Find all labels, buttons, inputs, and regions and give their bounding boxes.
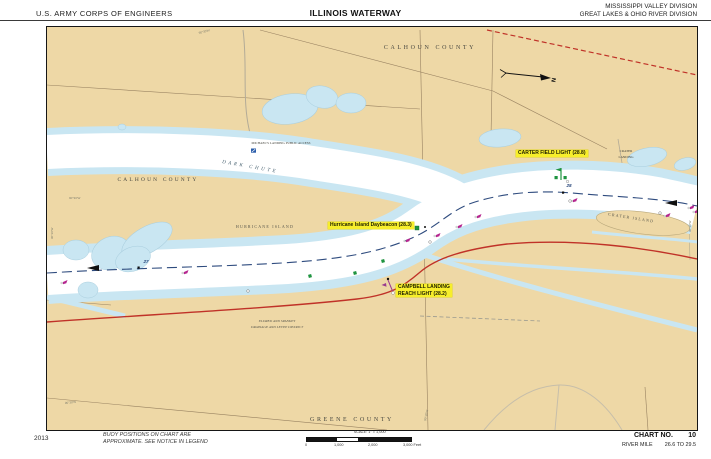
county-label-calhoun-left: CALHOUN COUNTY <box>118 177 199 183</box>
division-line1: MISSISSIPPI VALLEY DIVISION <box>580 3 697 11</box>
campbell-landing-line1: CAMPBELL LANDING <box>398 284 450 291</box>
buoy <box>424 226 426 228</box>
chart-number-label: CHART NO. <box>634 432 673 439</box>
division-line2: GREAT LAKES & OHIO RIVER DIVISION <box>580 11 697 19</box>
scale-bar-segment <box>307 438 337 441</box>
buoy-notice: BUOY POSITIONS ON CHART ARE APPROXIMATE.… <box>103 432 208 446</box>
river-mile-value: 26.6 TO 29.5 <box>665 442 696 448</box>
public-access-label: MICHAEL'S LANDING PUBLIC ACCESS <box>252 141 311 145</box>
river-mile-label: RIVER MILE <box>622 442 653 448</box>
mile-marker-dot <box>138 267 140 269</box>
scale-bar <box>306 437 412 442</box>
buoy <box>664 215 666 217</box>
buoy <box>429 241 432 244</box>
hurricane-island-label: HURRICANE ISLAND <box>236 224 294 229</box>
buoy <box>659 212 662 215</box>
buoy <box>475 216 477 218</box>
scale-tick-1000: 1,000 <box>334 443 344 447</box>
mile-marker-dot <box>562 192 564 194</box>
county-label-greene: GREENE COUNTY <box>310 417 394 423</box>
graticule-label: 90°30'W <box>688 221 692 232</box>
hurricane-island-daybeacon-label: Hurricane Island Daybeacon (28.3) <box>328 222 414 229</box>
levee-district-label-2: DRAINAGE AND LEVEE DISTRICT <box>250 325 304 329</box>
chart-number: CHART NO. 10 <box>634 432 696 439</box>
buoy <box>61 282 63 284</box>
boat-ramp-icon <box>251 149 256 153</box>
buoy <box>688 207 690 209</box>
header-rule <box>0 20 711 21</box>
buoy <box>415 226 419 230</box>
graticule-label: 90°30'W <box>50 228 54 239</box>
scale-bar-segment <box>358 438 411 441</box>
buoy <box>404 240 406 242</box>
chart-canvas: 27 28 N <box>47 27 697 430</box>
graticule-label: 90°30'W <box>69 196 80 200</box>
buoy <box>247 290 250 293</box>
chart-year: 2013 <box>34 435 48 442</box>
river-mile-range: RIVER MILE 26.6 TO 29.5 <box>622 442 696 448</box>
mile-marker-27: 27 <box>142 259 149 264</box>
buoy <box>434 235 436 237</box>
scale-tick-0: 0 <box>305 443 307 447</box>
chart-number-value: 10 <box>688 432 696 439</box>
chart-page: { "header": { "agency": "U.S. ARMY CORPS… <box>0 0 711 459</box>
division-titles: MISSISSIPPI VALLEY DIVISION GREAT LAKES … <box>580 3 697 19</box>
scale-label: SCALE: 1" = 1,000' <box>300 430 440 434</box>
buoy <box>456 226 458 228</box>
buoy <box>693 211 695 213</box>
crater-landing-label-2: LANDING <box>618 155 634 159</box>
chart-map: 27 28 N <box>46 26 698 431</box>
buoy-notice-line1: BUOY POSITIONS ON CHART ARE <box>103 432 208 439</box>
buoy <box>569 200 572 203</box>
levee-district-label-1: ELDRED AND SPANKEY <box>258 319 296 323</box>
campbell-landing-line2: REACH LIGHT (28.2) <box>398 291 450 298</box>
carter-field-light-label: CARTER FIELD LIGHT (28.8) <box>516 150 588 157</box>
scale-bar-segment <box>337 438 358 441</box>
buoy <box>182 272 184 274</box>
campbell-landing-light-label: CAMPBELL LANDING REACH LIGHT (28.2) <box>396 284 452 297</box>
scale-tick-3000: 3,000 Feet <box>403 443 421 447</box>
scale-tick-2000: 2,000 <box>368 443 378 447</box>
mile-marker-28: 28 <box>565 183 572 188</box>
crater-landing-label-1: CRATER <box>620 149 633 153</box>
county-label-calhoun-top: CALHOUN COUNTY <box>384 45 476 51</box>
buoy-notice-line2: APPROXIMATE. SEE NOTICE IN LEGEND <box>103 439 208 446</box>
